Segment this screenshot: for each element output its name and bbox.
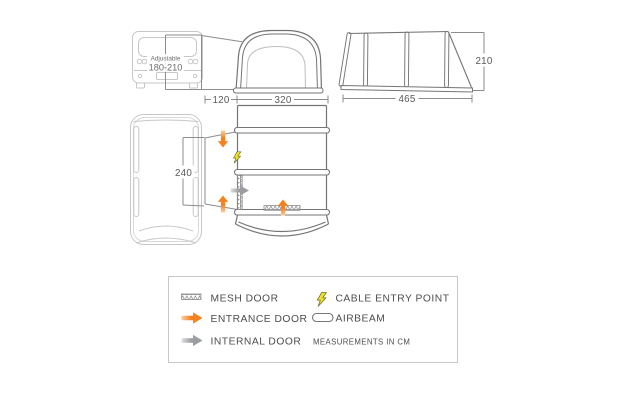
adjustable-label-text: Adjustable xyxy=(151,56,181,63)
plan-front-curve-inner xyxy=(239,222,326,232)
legend-mesh-door-label: MESH DOOR xyxy=(211,294,279,305)
airbeam-icon xyxy=(313,314,334,322)
side-front-slope xyxy=(449,32,472,88)
floor-plan xyxy=(205,106,330,237)
awning-front-view xyxy=(234,31,324,94)
legend-measurements-note: MEASUREMENTS IN CM xyxy=(313,338,410,347)
side-groundsheet-bar xyxy=(341,86,473,93)
legend-internal-door-label: INTERNAL DOOR xyxy=(211,337,302,348)
dimension-side-depth: 465 xyxy=(343,93,472,106)
adjustable-range-text: 180-210 xyxy=(149,63,183,73)
dimension-height: 210 xyxy=(451,33,497,91)
legend-item-cable-entry: CABLE ENTRY POINT xyxy=(317,293,449,307)
dim-320-text: 320 xyxy=(275,95,292,106)
dim-465-text: 465 xyxy=(399,94,416,105)
dim-240-text: 240 xyxy=(175,168,192,179)
side-airbeams xyxy=(341,34,447,86)
legend-airbeam-label: AIRBEAM xyxy=(336,314,386,325)
mesh-door-icon xyxy=(182,294,202,300)
legend: MESH DOOR ENTRANCE DOOR INTERNAL DOOR CA… xyxy=(169,277,458,363)
adjustable-height-label: Adjustable 180-210 xyxy=(147,54,184,73)
legend-cable-entry-label: CABLE ENTRY POINT xyxy=(336,294,450,305)
entrance-door-arrow-tunnel-bottom xyxy=(218,196,228,213)
dim-210-text: 210 xyxy=(476,56,493,67)
entrance-door-arrow-tunnel-top xyxy=(218,131,228,148)
awning-side-view xyxy=(341,32,473,93)
dimension-tunnel-width: 120 xyxy=(205,94,237,107)
van-top-view xyxy=(131,115,202,245)
front-groundsheet-bar xyxy=(234,88,324,93)
legend-entrance-door-label: ENTRANCE DOOR xyxy=(211,314,308,325)
dim-120-text: 120 xyxy=(213,95,230,106)
diagram-svg: Adjustable 180-210 120 xyxy=(0,0,640,400)
awning-dimensions-diagram: Adjustable 180-210 120 xyxy=(0,0,640,400)
dimension-front-width: 320 xyxy=(237,94,328,107)
